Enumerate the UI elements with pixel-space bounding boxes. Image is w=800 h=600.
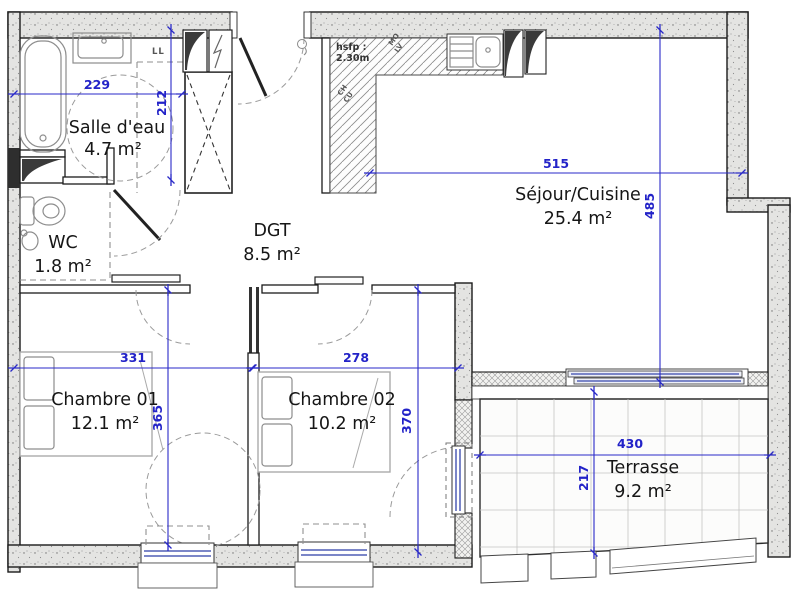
chambre02-east-wall-insulated-bottom: [455, 513, 472, 558]
sejour-south-wall-right: [745, 372, 768, 386]
chambre01-window-opening-dash: [146, 526, 209, 545]
area-chambre02: 10.2 m²: [308, 414, 377, 434]
bottom-wall-1: [8, 545, 143, 567]
chambre01-north-wall: [20, 285, 190, 293]
dim-430: 430: [617, 436, 643, 451]
washbasin-bowl: [78, 37, 123, 58]
area-salle-deau: 4.7 m²: [84, 140, 141, 160]
terrace-ledge-1: [481, 554, 528, 583]
chambre02-door-swing: [318, 290, 372, 344]
chambre01-window-sill: [138, 563, 217, 588]
chambre01-turning-circle: [146, 433, 260, 547]
terrace-floor: [480, 399, 768, 557]
area-wc: 1.8 m²: [34, 257, 91, 277]
floor-plan-page: LL: [0, 0, 800, 600]
washer-label: LL: [152, 47, 165, 57]
label-sejour: Séjour/Cuisine: [515, 185, 641, 205]
sde-wc-wall: [20, 150, 65, 157]
label-wc: WC: [48, 233, 78, 253]
bottom-wall-2: [212, 545, 300, 567]
salle-deau-door-leaf: [114, 190, 160, 240]
area-dgt: 8.5 m²: [243, 245, 300, 265]
toilet-bowl-inner: [43, 204, 59, 218]
dim-515: 515: [543, 156, 569, 171]
terrace-access-swing: [390, 447, 460, 517]
right-wall-lower: [768, 205, 790, 557]
right-wall-upper: [727, 12, 748, 205]
bathtub-drain: [40, 135, 46, 141]
entry-door-swing: [238, 38, 304, 104]
furniture-beds: [20, 352, 390, 472]
dim-229: 229: [84, 77, 110, 92]
dim-217: 217: [576, 465, 591, 491]
dim-331: 331: [120, 350, 146, 365]
dim-370: 370: [399, 408, 414, 434]
pocket-door-rail-right: [256, 287, 259, 353]
area-terrasse: 9.2 m²: [614, 482, 671, 502]
kitchen-sink-unit: [447, 34, 503, 70]
area-chambre01: 12.1 m²: [71, 414, 140, 434]
closet: [185, 72, 232, 193]
pocket-door-rail-left: [249, 287, 252, 353]
entry-door-leaf: [240, 38, 266, 96]
chambre02-north-wall-left: [262, 285, 318, 293]
chambre02-sliding-door-leaf: [315, 277, 363, 284]
bay-window-sill: [472, 386, 768, 399]
dim-278: 278: [343, 350, 369, 365]
chambre01-door-swing: [136, 290, 190, 344]
entry-symbol-icon: [298, 40, 307, 49]
toilet-bowl: [33, 197, 65, 225]
chambre02-north-wall-right: [372, 285, 455, 293]
label-salle-deau: Salle d'eau: [69, 118, 165, 138]
floor-plan: LL: [0, 0, 800, 600]
chambre02-side-window-frame: [452, 446, 465, 514]
chambre01-sliding-door-leaf: [112, 275, 180, 282]
entry-symbol-tail: [304, 48, 306, 55]
chambre02-east-wall: [455, 283, 472, 400]
terrace-ledge-2: [551, 551, 596, 579]
washbasin-tap: [102, 39, 106, 43]
chambre02-window-frame: [298, 542, 370, 562]
chambre02-window-opening-dash: [303, 524, 365, 544]
label-chambre02: Chambre 02: [288, 390, 396, 410]
dim-212: 212: [154, 90, 169, 116]
hsfp-label: hsfp :: [336, 42, 366, 53]
dim-485: 485: [642, 193, 657, 219]
left-wall: [8, 12, 20, 572]
label-chambre01: Chambre 01: [51, 390, 159, 410]
entry-jamb-right: [304, 12, 311, 38]
chambre01-window-frame: [141, 543, 214, 563]
hsfp-value: 2.30m: [336, 53, 369, 64]
hand-basin: [22, 232, 38, 250]
label-terrasse: Terrasse: [606, 458, 679, 478]
chambre02-east-wall-insulated-top: [455, 400, 472, 448]
toilet-tank: [20, 197, 34, 225]
kitchen-wall: [322, 38, 330, 193]
chambre02-window-sill: [295, 562, 373, 587]
area-sejour: 25.4 m²: [544, 209, 613, 229]
left-wall-duct: [8, 148, 20, 188]
label-dgt: DGT: [253, 221, 290, 241]
sejour-south-wall-left: [472, 372, 570, 386]
